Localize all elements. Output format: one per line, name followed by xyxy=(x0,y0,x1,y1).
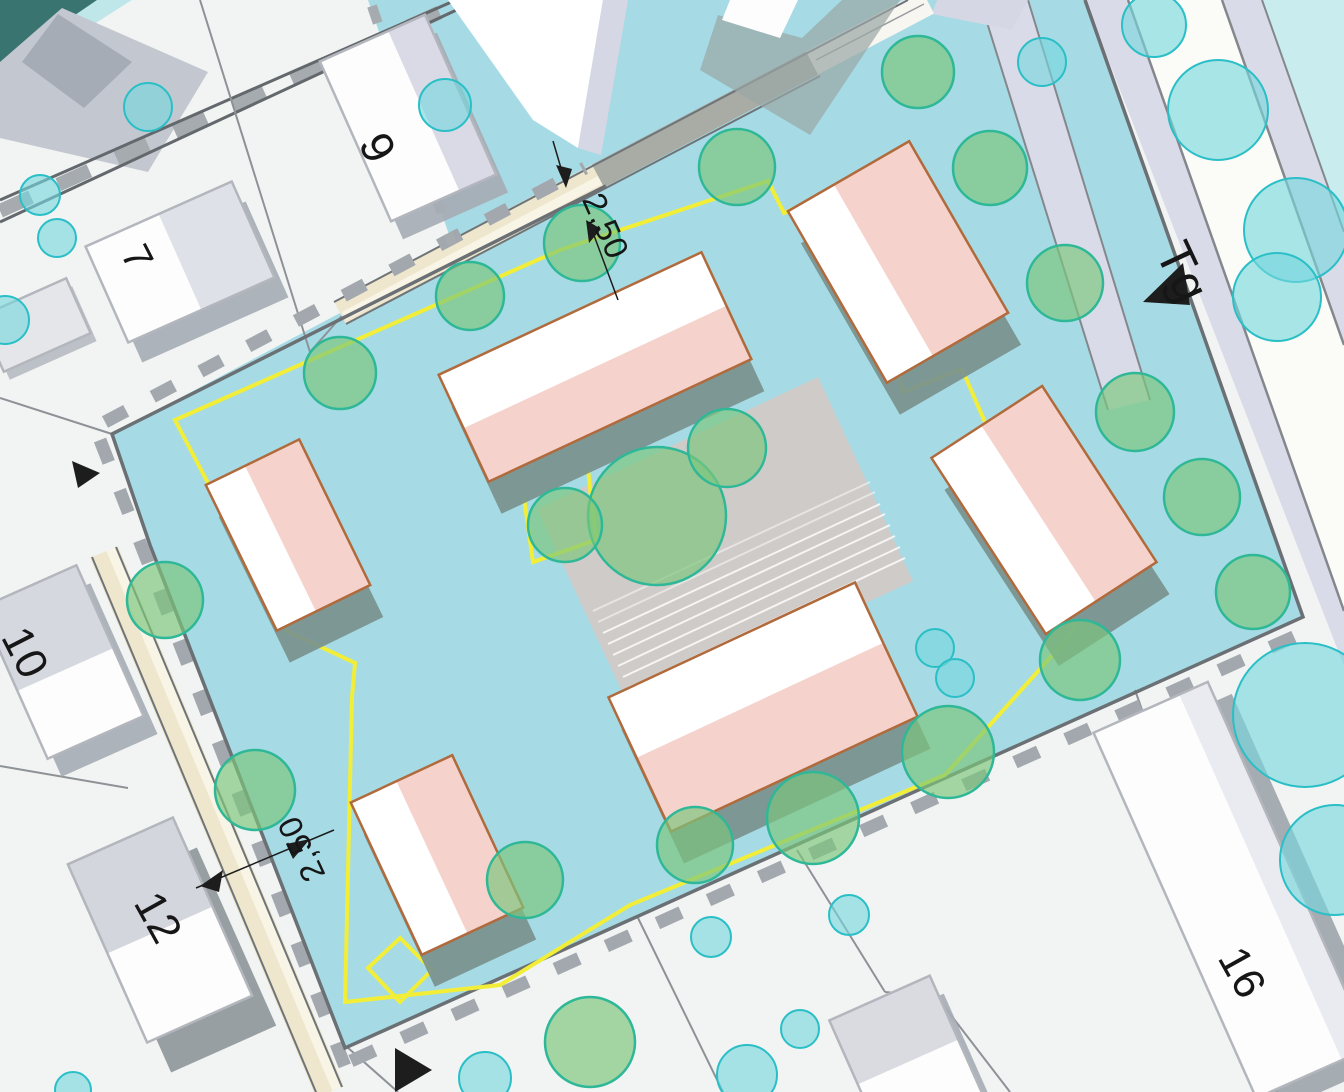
tree-green-icon xyxy=(688,409,766,487)
tree-existing-icon xyxy=(936,659,974,697)
tree-green-icon xyxy=(215,750,295,830)
tree-existing-icon xyxy=(20,175,60,215)
tree-green-icon xyxy=(882,36,954,108)
tree-green-icon xyxy=(1216,555,1290,629)
tree-existing-icon xyxy=(38,219,76,257)
tree-green-icon xyxy=(1096,373,1174,451)
tree-green-icon xyxy=(127,562,203,638)
tree-existing-icon xyxy=(1122,0,1186,57)
tree-green-icon xyxy=(953,131,1027,205)
site-plan-page: 97101216Tg2,502,50 xyxy=(0,0,1344,1092)
tree-green-icon xyxy=(902,706,994,798)
site-plan-canvas: 97101216Tg2,502,50 xyxy=(0,0,1344,1092)
tree-green-icon xyxy=(304,337,376,409)
tree-existing-icon xyxy=(1233,253,1321,341)
tree-green-icon xyxy=(487,842,563,918)
tree-existing-icon xyxy=(829,895,869,935)
tree-green-icon xyxy=(528,488,602,562)
tree-existing-icon xyxy=(124,83,172,131)
tree-existing-icon xyxy=(1168,60,1268,160)
tree-green-icon xyxy=(545,997,635,1087)
tree-green-icon xyxy=(1164,459,1240,535)
tree-green-icon xyxy=(657,807,733,883)
tree-existing-icon xyxy=(419,79,471,131)
tree-existing-icon xyxy=(1018,38,1066,86)
tree-green-icon xyxy=(699,129,775,205)
tree-existing-icon xyxy=(691,917,731,957)
tree-green-icon xyxy=(1027,245,1103,321)
tree-green-icon xyxy=(767,772,859,864)
tree-existing-icon xyxy=(781,1010,819,1048)
tree-green-icon xyxy=(436,262,504,330)
tree-green-icon xyxy=(1040,620,1120,700)
